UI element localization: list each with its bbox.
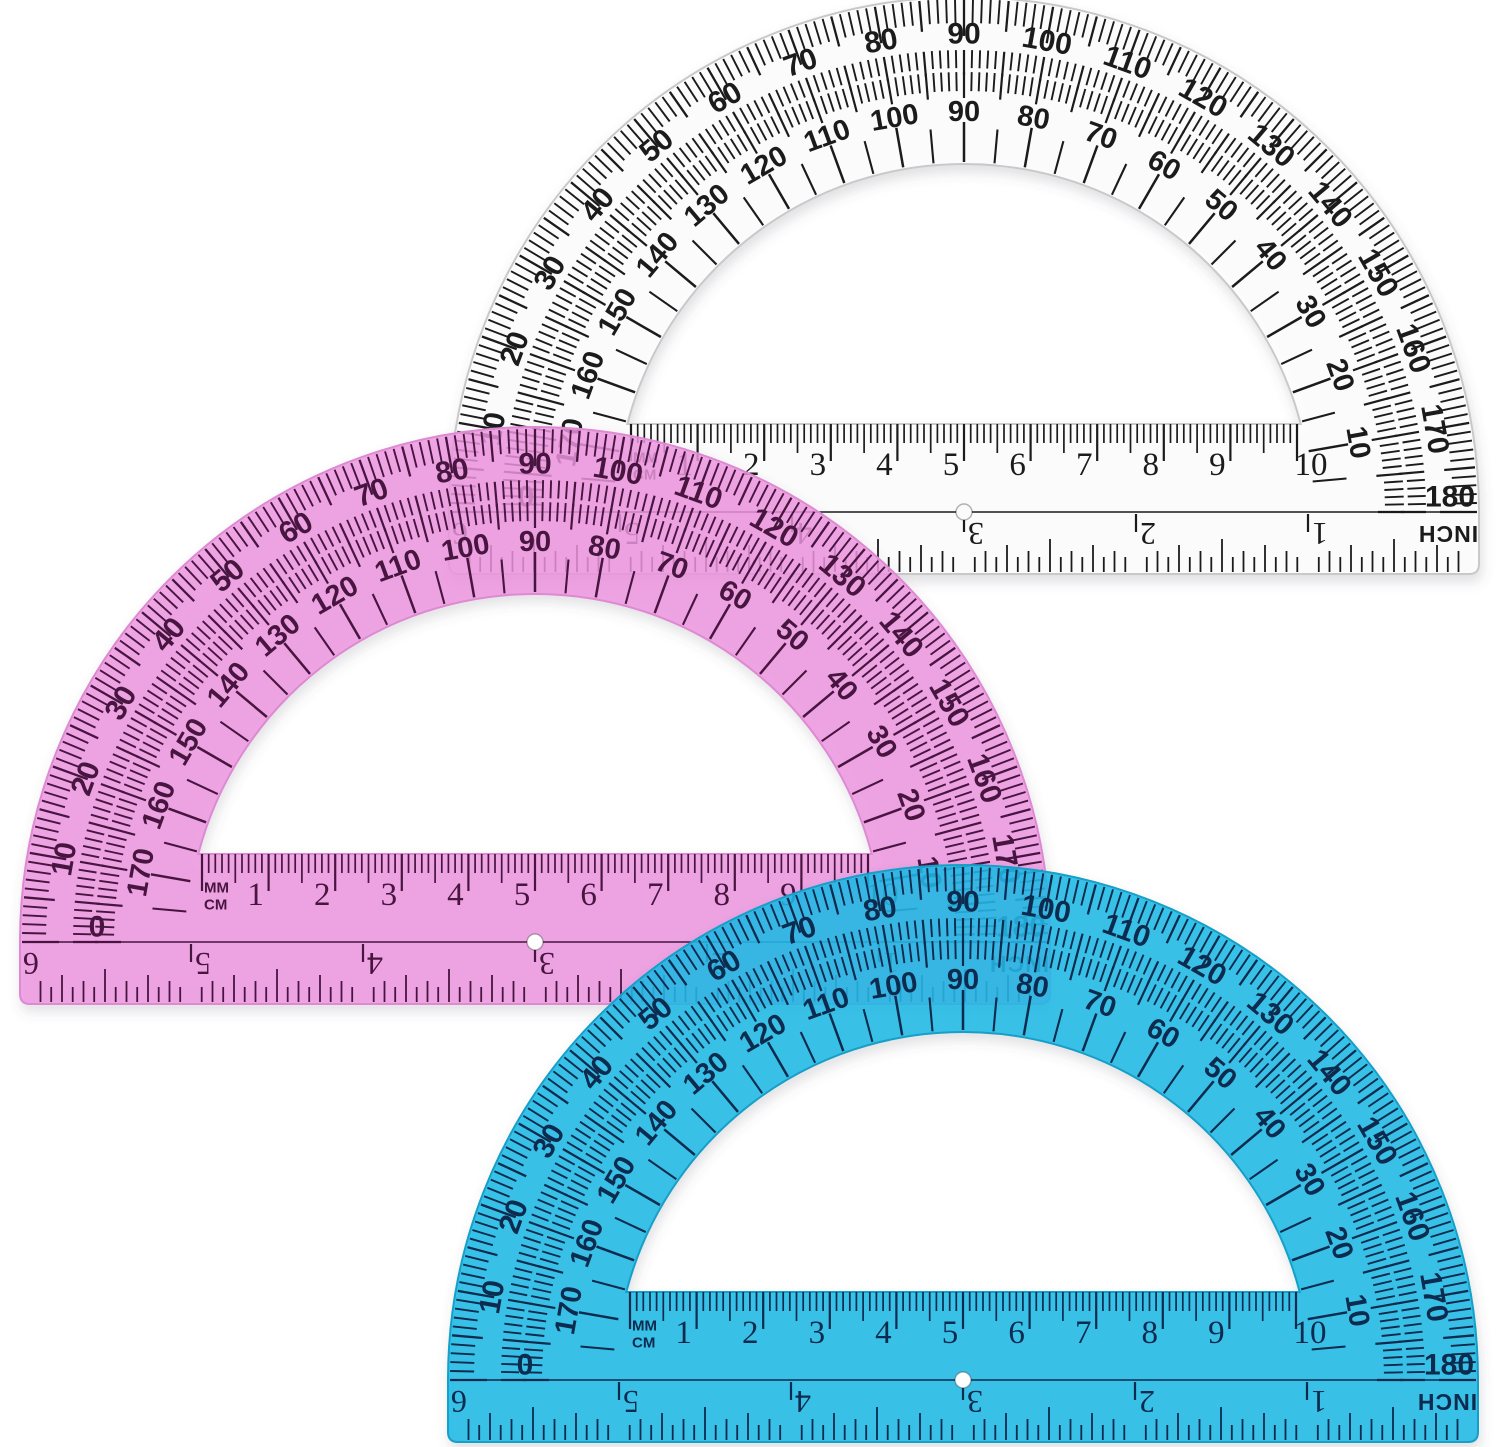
degree-label-outer: 80 <box>862 22 901 60</box>
inch-number: 3 <box>968 516 984 552</box>
cm-number: 6 <box>1009 447 1026 483</box>
cm-unit-label: CM <box>632 1335 655 1352</box>
inch-number: 2 <box>1140 516 1156 552</box>
cm-number: 2 <box>742 1315 759 1351</box>
cm-number: 10 <box>1295 447 1328 483</box>
cm-number: 5 <box>514 877 531 913</box>
cm-number: 8 <box>1143 447 1160 483</box>
cm-number: 3 <box>381 877 398 913</box>
inch-number: 5 <box>195 946 211 982</box>
zero-end-label: 0 <box>89 911 106 944</box>
degree-label-inner: 10 <box>1339 424 1376 461</box>
center-hole <box>527 934 543 950</box>
inch-number: 1 <box>1312 516 1328 552</box>
cm-number: 9 <box>1209 447 1226 483</box>
cm-number: 6 <box>580 877 597 913</box>
cm-unit-label: CM <box>204 897 227 914</box>
degree-label-outer: 90 <box>946 886 979 919</box>
end-180-label: 180 <box>1425 481 1475 514</box>
inch-number: 3 <box>539 946 555 982</box>
cm-number: 3 <box>809 1315 826 1351</box>
cm-number: 7 <box>1076 447 1093 483</box>
zero-end-label: 0 <box>517 1349 534 1382</box>
cm-number: 5 <box>943 447 960 483</box>
degree-label-outer: 10 <box>45 840 83 879</box>
inch-number: 5 <box>623 1384 639 1420</box>
cm-number: 7 <box>1075 1315 1092 1351</box>
degree-label-inner: 80 <box>1014 968 1051 1005</box>
product-photo: 1020304050607080901001101201301401501601… <box>0 0 1500 1447</box>
degree-label-outer: 10 <box>473 1278 511 1317</box>
inch-number: 1 <box>1311 1384 1327 1420</box>
cm-number: 1 <box>247 877 264 913</box>
cm-number: 4 <box>447 877 464 913</box>
end-180-label: 180 <box>1424 1349 1474 1382</box>
cm-number: 2 <box>314 877 331 913</box>
degree-label-outer: 80 <box>861 890 900 928</box>
inch-number: 6 <box>23 946 39 982</box>
degree-label-inner: 80 <box>586 530 623 567</box>
inch-number: 6 <box>451 1384 467 1420</box>
inch-number: 4 <box>795 1384 811 1420</box>
inch-number: 4 <box>367 946 383 982</box>
degree-label-outer: 90 <box>947 18 980 51</box>
cm-number: 4 <box>876 447 893 483</box>
degree-label-outer: 80 <box>433 452 472 490</box>
cm-number: 8 <box>714 877 731 913</box>
cm-number: 6 <box>1008 1315 1025 1351</box>
cm-number: 8 <box>1142 1315 1159 1351</box>
inch-unit-label: INCH <box>1418 521 1478 547</box>
degree-label-inner: 90 <box>947 964 979 996</box>
protractor-scene: 1020304050607080901001101201301401501601… <box>0 0 1500 1447</box>
cm-number: 1 <box>675 1315 692 1351</box>
degree-label-inner: 90 <box>948 96 980 128</box>
cm-number: 7 <box>647 877 664 913</box>
degree-label-inner: 80 <box>1015 100 1052 137</box>
mm-unit-label: MM <box>632 1318 657 1335</box>
degree-label-outer: 90 <box>518 448 551 481</box>
cm-number: 10 <box>1294 1315 1327 1351</box>
inch-number: 3 <box>967 1384 983 1420</box>
degree-label-inner: 10 <box>1338 1292 1375 1329</box>
mm-unit-label: MM <box>204 880 229 897</box>
cm-number: 3 <box>810 447 827 483</box>
center-hole <box>955 1372 971 1388</box>
center-hole <box>956 504 972 520</box>
cm-number: 4 <box>875 1315 892 1351</box>
inch-unit-label: INCH <box>1417 1389 1477 1415</box>
cm-number: 5 <box>942 1315 959 1351</box>
cm-number: 9 <box>1208 1315 1225 1351</box>
degree-label-inner: 90 <box>519 526 551 558</box>
inch-number: 2 <box>1139 1384 1155 1420</box>
